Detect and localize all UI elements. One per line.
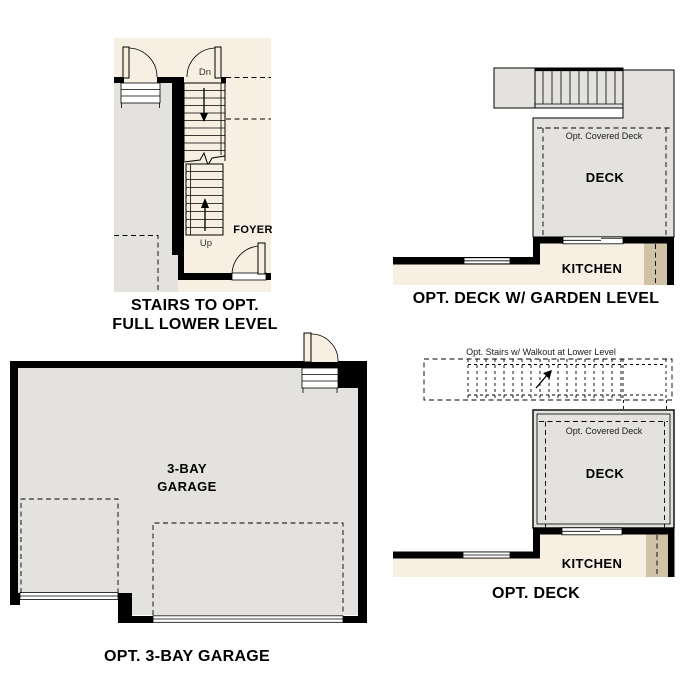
wall <box>343 616 367 623</box>
lower-level-area <box>114 83 178 292</box>
stair-wall <box>172 77 184 255</box>
covered-deck-label: Opt. Covered Deck <box>566 426 643 436</box>
kitchen-label: KITCHEN <box>562 261 623 276</box>
garage-room-label-line1: 3-BAY <box>167 461 207 476</box>
garage-plan: 3-BAY GARAGE OPT. 3-BAY GARAGE <box>10 333 367 665</box>
step-wall <box>118 593 132 623</box>
staircase-up-run <box>186 164 223 235</box>
down-label: Dn <box>199 67 211 78</box>
window-icon <box>463 552 510 558</box>
garage-door-double <box>153 616 343 623</box>
covered-deck-label: Opt. Covered Deck <box>566 131 643 141</box>
garage-right-wall <box>358 361 367 623</box>
sliding-door-icon <box>563 237 623 244</box>
door-swing-icon <box>304 333 338 362</box>
floorplan-svg: Dn Up FOYER STAIRS TO OPT. FULL LOWER LE… <box>0 0 687 687</box>
wall <box>667 237 674 285</box>
deck-label: DECK <box>586 466 625 481</box>
foyer-wall <box>178 273 232 280</box>
stairs-note-label: Opt. Stairs w/ Walkout at Lower Level <box>466 347 616 357</box>
up-label: Up <box>200 238 212 249</box>
wall <box>266 273 271 280</box>
opt-deck-plan: Opt. Stairs w/ Walkout at Lower Level <box>393 347 675 602</box>
garage-door-single <box>20 593 118 600</box>
stair-landing <box>494 68 535 108</box>
garage-room-label-line2: GARAGE <box>157 479 216 494</box>
staircase-down-run <box>184 83 225 161</box>
kitchen-label: KITCHEN <box>562 556 623 571</box>
garden-deck-caption: OPT. DECK W/ GARDEN LEVEL <box>413 290 660 307</box>
wall <box>132 616 153 623</box>
foyer-label: FOYER <box>233 224 272 236</box>
opt-deck-caption: OPT. DECK <box>492 585 580 602</box>
deck-label: DECK <box>586 170 625 185</box>
stairs-caption-line2: FULL LOWER LEVEL <box>112 316 277 333</box>
stairs-lower-level-plan: Dn Up FOYER STAIRS TO OPT. FULL LOWER LE… <box>112 38 277 333</box>
sliding-door-icon <box>562 528 622 535</box>
wall <box>10 593 20 605</box>
garden-staircase <box>535 68 623 108</box>
floorplan-options-sheet: Dn Up FOYER STAIRS TO OPT. FULL LOWER LE… <box>0 0 687 687</box>
garage-left-wall <box>10 361 18 605</box>
window-icon <box>464 258 510 264</box>
stairs-caption-line1: STAIRS TO OPT. <box>131 297 259 314</box>
garden-level-deck-plan: Opt. Covered Deck DECK KITCHEN OPT. DECK… <box>393 68 674 307</box>
wall <box>668 528 675 577</box>
wall <box>533 528 540 552</box>
wall <box>221 77 226 83</box>
garage-top-wall <box>10 361 367 368</box>
garage-caption: OPT. 3-BAY GARAGE <box>104 648 270 665</box>
optional-stairs-dashed <box>424 359 672 410</box>
entry-corner-wall <box>337 361 367 388</box>
